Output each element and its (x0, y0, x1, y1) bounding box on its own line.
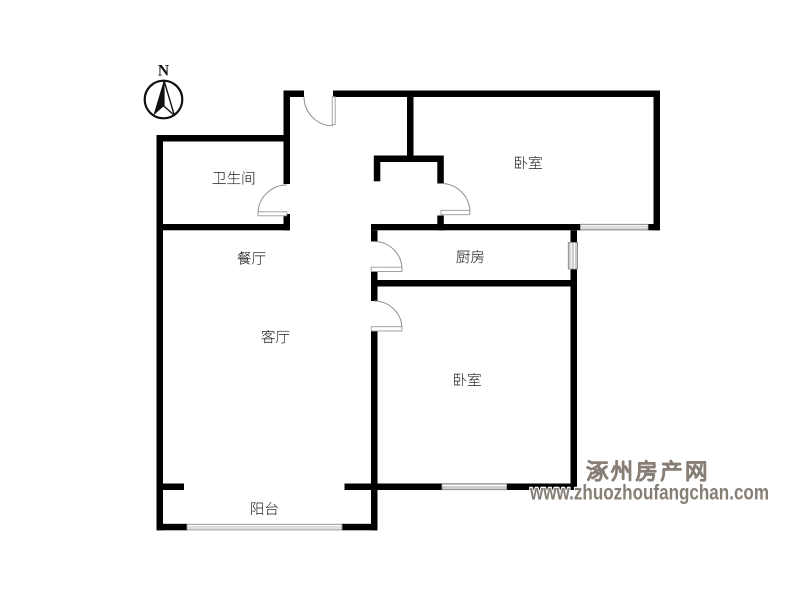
svg-text:N: N (158, 63, 169, 80)
svg-text:www.zhuozhoufangchan.com: www.zhuozhoufangchan.com (529, 480, 769, 505)
